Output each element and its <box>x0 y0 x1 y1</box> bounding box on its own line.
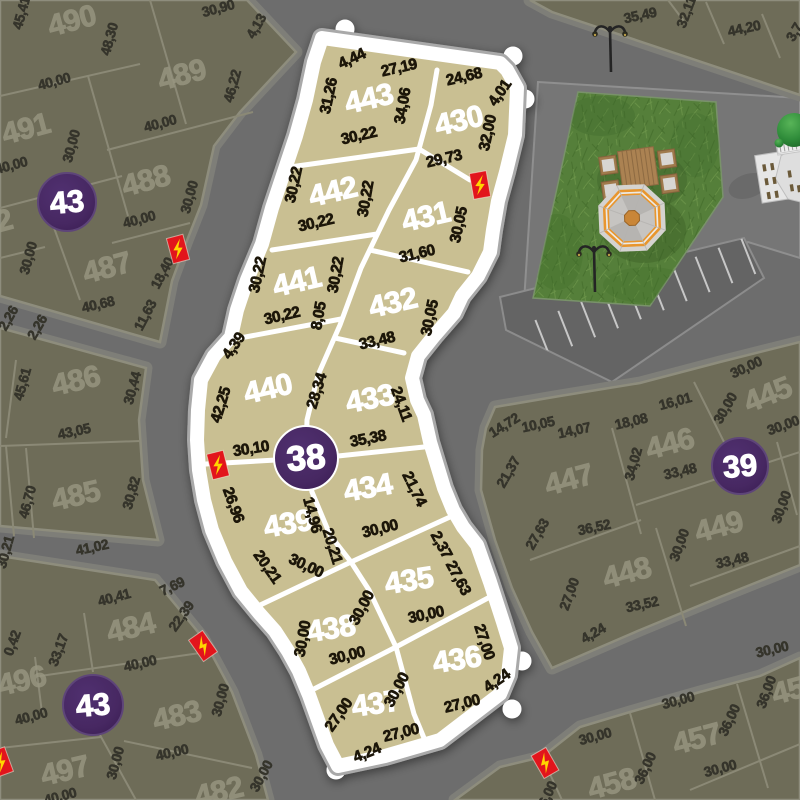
svg-text:43: 43 <box>48 183 85 221</box>
svg-text:39: 39 <box>721 447 758 485</box>
svg-text:43: 43 <box>74 686 111 724</box>
svg-text:38: 38 <box>285 437 327 479</box>
